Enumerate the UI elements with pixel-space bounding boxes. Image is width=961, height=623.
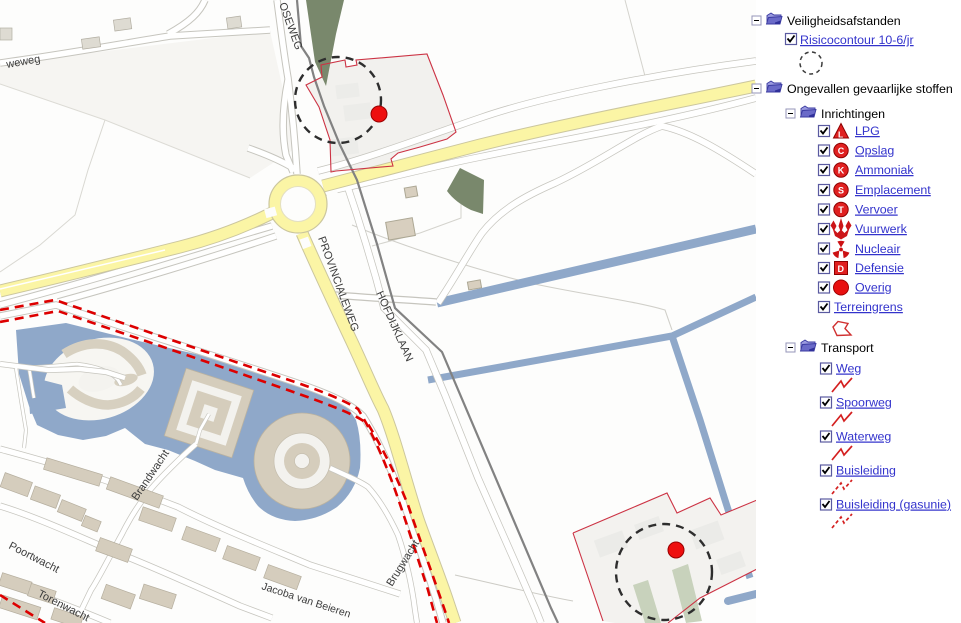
svg-text:Ammoniak: Ammoniak [855, 163, 914, 177]
svg-text:Terreingrens: Terreingrens [834, 300, 903, 314]
svg-text:Transport: Transport [821, 341, 874, 355]
svg-text:Opslag: Opslag [855, 144, 894, 158]
svg-text:Nucleair: Nucleair [855, 242, 900, 256]
svg-text:Spoorweg: Spoorweg [836, 396, 892, 410]
svg-text:Risicocontour 10-6/jr: Risicocontour 10-6/jr [800, 33, 914, 47]
svg-text:C: C [838, 146, 845, 156]
svg-text:Inrichtingen: Inrichtingen [821, 107, 885, 121]
svg-text:K: K [838, 166, 845, 176]
svg-text:Weg: Weg [836, 362, 861, 376]
svg-text:Ongevallen gevaarlijke stoffen: Ongevallen gevaarlijke stoffen [787, 82, 953, 96]
svg-text:Vervoer: Vervoer [855, 203, 898, 217]
svg-text:T: T [838, 205, 844, 215]
svg-text:Vuurwerk: Vuurwerk [855, 222, 908, 236]
svg-text:Waterweg: Waterweg [836, 430, 891, 444]
svg-text:Defensie: Defensie [855, 261, 904, 275]
svg-text:Buisleiding (gasunie): Buisleiding (gasunie) [836, 498, 951, 512]
svg-text:L: L [838, 130, 843, 140]
svg-text:Buisleiding: Buisleiding [836, 464, 896, 478]
svg-text:LPG: LPG [855, 124, 880, 138]
svg-text:D: D [838, 264, 845, 274]
svg-text:Veiligheidsafstanden: Veiligheidsafstanden [787, 14, 901, 28]
svg-text:S: S [838, 186, 844, 196]
svg-text:Emplacement: Emplacement [855, 183, 931, 197]
svg-text:Overig: Overig [855, 281, 892, 295]
